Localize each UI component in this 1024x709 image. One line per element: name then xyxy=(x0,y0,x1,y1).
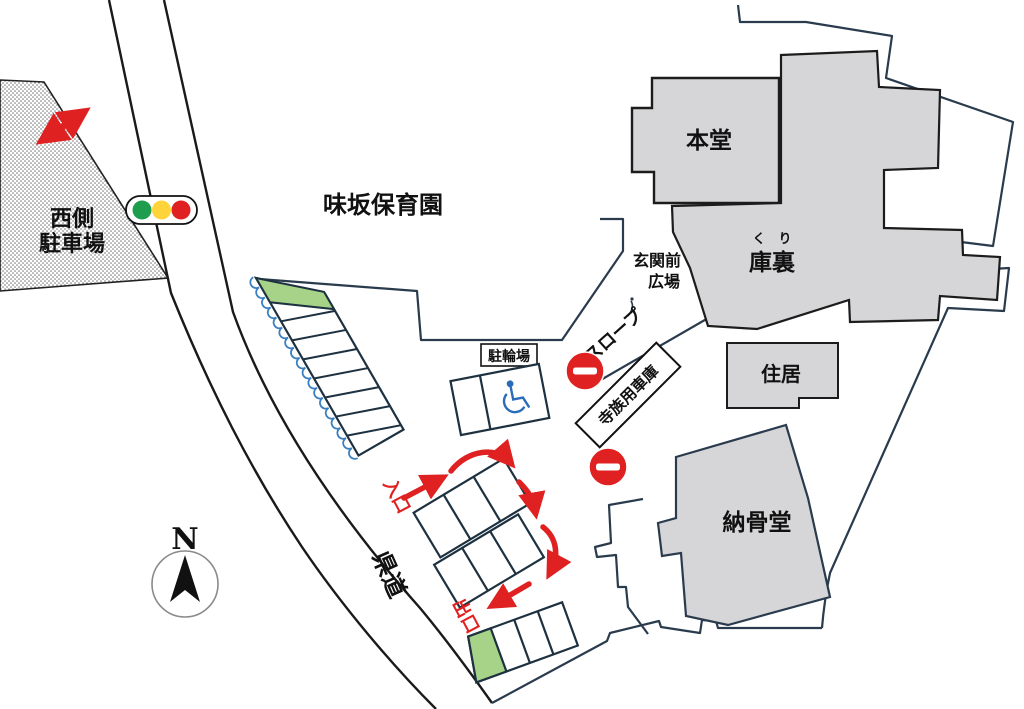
main-hall-label: 本堂 xyxy=(686,127,732,153)
kuri-label: 庫裏 xyxy=(749,249,796,275)
kuri-furigana: く り xyxy=(752,231,791,246)
exit-label: 出口 xyxy=(448,595,483,637)
accessible-parking xyxy=(450,364,549,435)
entrance-label: 入口 xyxy=(379,475,414,516)
bicycle-parking: 駐輪場 xyxy=(481,344,537,366)
prefectural-road-label: 県道 xyxy=(367,547,412,602)
entrance-arrow xyxy=(404,479,440,498)
south-parking-row xyxy=(461,602,578,682)
nursery-school-label: 味坂保育園 xyxy=(323,191,443,219)
entrance-plaza-label-2: 広場 xyxy=(648,272,680,291)
site-map-canvas: 西側 駐車場 県道 味坂保育園 本堂 く り 庫裏 住居 納骨堂 玄関前 広場 xyxy=(0,0,1024,709)
west-parking-area: 西側 駐車場 xyxy=(0,80,168,291)
entrance-plaza-label-1: 玄関前 xyxy=(633,251,681,270)
west-parking-label-1: 西側 xyxy=(50,206,94,231)
traffic-light-icon xyxy=(126,196,197,224)
north-arrow-icon xyxy=(170,555,200,602)
exit-arrow xyxy=(495,584,529,604)
bicycle-parking-label: 駐輪場 xyxy=(488,348,530,364)
boundary-steps xyxy=(595,499,648,634)
flow-arrow-down-2 xyxy=(543,527,556,571)
ossuary-label: 納骨堂 xyxy=(723,509,792,535)
roadside-parking-strip xyxy=(248,250,404,461)
no-entry-icon xyxy=(589,448,627,486)
site-map: 西側 駐車場 県道 味坂保育園 本堂 く り 庫裏 住居 納骨堂 玄関前 広場 xyxy=(0,0,1024,709)
west-parking-label-2: 駐車場 xyxy=(39,231,105,256)
no-entry-icon xyxy=(566,352,604,390)
compass: N xyxy=(152,522,218,617)
residence-label: 住居 xyxy=(761,362,801,386)
